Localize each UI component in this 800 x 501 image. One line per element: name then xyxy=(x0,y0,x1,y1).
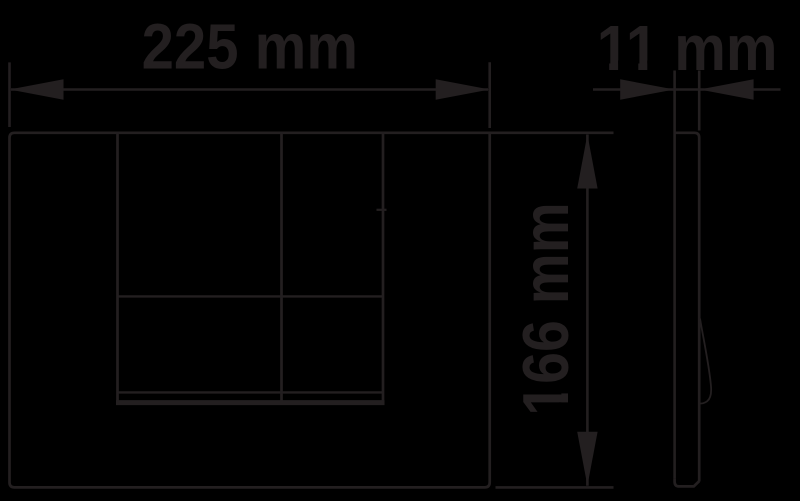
svg-text:166 mm: 166 mm xyxy=(509,202,582,415)
svg-text:11 mm: 11 mm xyxy=(597,12,778,84)
svg-text:225 mm: 225 mm xyxy=(142,11,358,83)
